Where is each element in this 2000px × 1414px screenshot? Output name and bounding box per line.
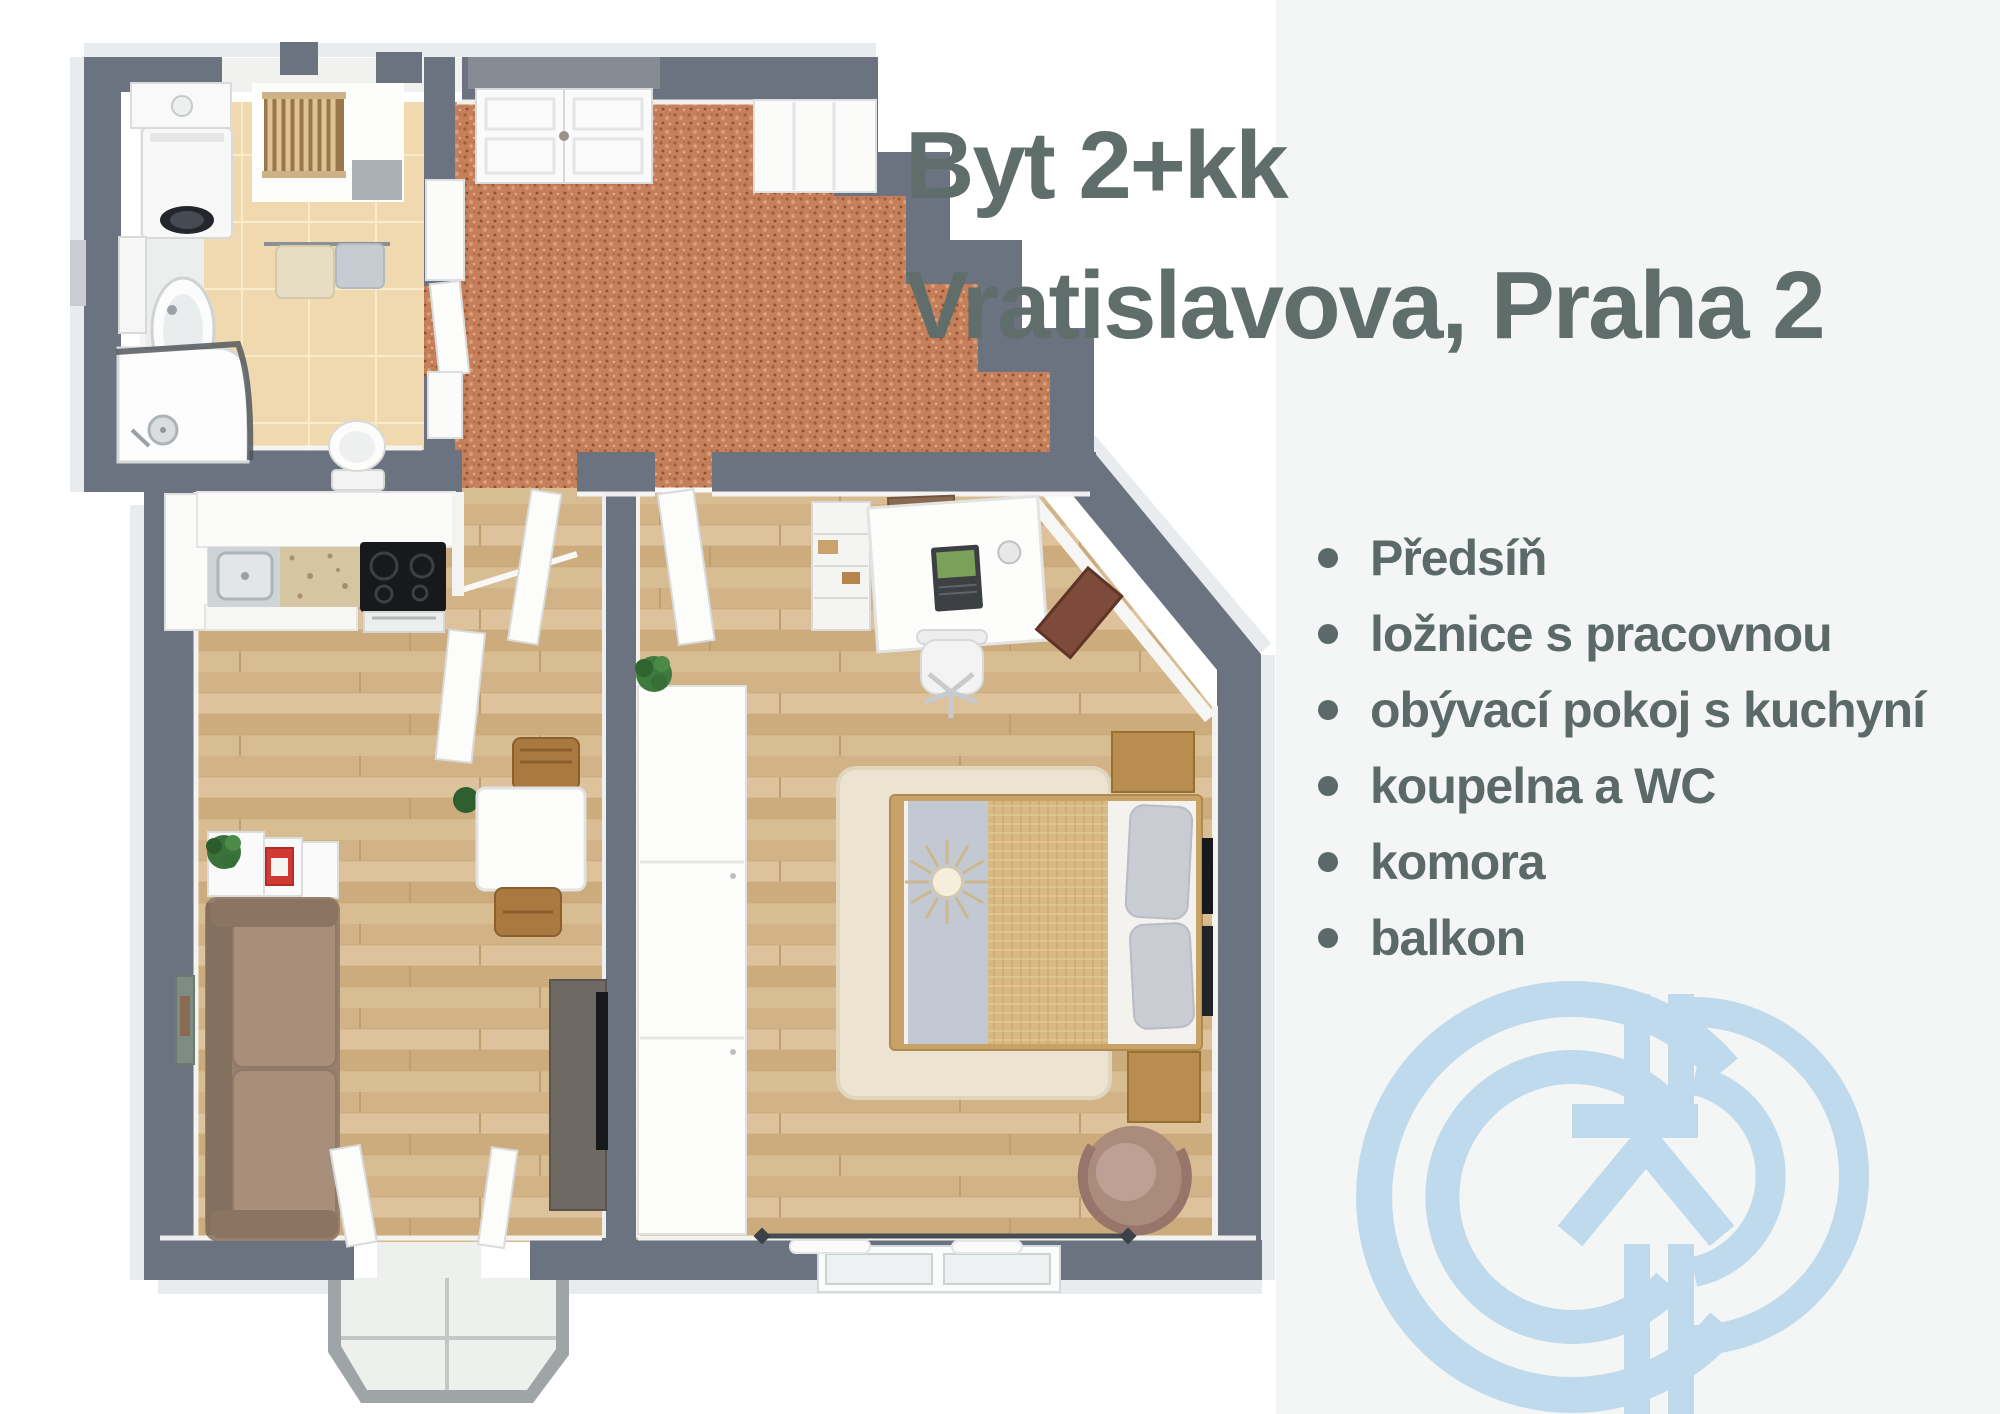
door-knob-icon xyxy=(559,131,569,141)
bed xyxy=(890,795,1202,1050)
floor-plant xyxy=(453,787,479,813)
feature-item: komora xyxy=(1318,824,1925,900)
gp-monogram-icon xyxy=(1350,980,2000,1414)
pillow xyxy=(1125,804,1193,919)
wardrobe xyxy=(638,686,746,1234)
logo-arrow-icon xyxy=(1570,1144,1722,1236)
cooktop xyxy=(360,542,446,612)
bed-blanket xyxy=(988,801,1108,1044)
bullet-icon xyxy=(1318,852,1338,872)
laptop xyxy=(931,545,983,612)
towel-gray xyxy=(336,244,384,288)
bullet-icon xyxy=(1318,776,1338,796)
bullet-icon xyxy=(1318,624,1338,644)
desk-lamp-icon xyxy=(998,541,1021,564)
feature-list: Předsíň ložnice s pracovnou obývací poko… xyxy=(1318,520,1925,976)
pillow xyxy=(1129,923,1194,1030)
bench xyxy=(352,160,402,200)
title-line-1: Byt 2+kk xyxy=(905,96,1824,236)
sofa xyxy=(205,897,340,1241)
oven-front xyxy=(364,612,444,632)
bullet-icon xyxy=(1318,548,1338,568)
magazine xyxy=(266,848,293,885)
dining-chair xyxy=(513,738,579,790)
shelf-unit xyxy=(812,502,870,630)
curtain xyxy=(790,1240,870,1253)
feature-item: ložnice s pracovnou xyxy=(1318,596,1925,672)
title-line-2: Vratislavova, Praha 2 xyxy=(905,236,1824,376)
hall-cabinet xyxy=(426,180,464,280)
toilet xyxy=(329,421,385,490)
towel-beige xyxy=(276,246,334,298)
logo-p-bowl-inner xyxy=(1694,1080,1771,1272)
kitchen xyxy=(165,492,464,632)
flyer-canvas: { "header": { "title_line1": "Byt 2+kk",… xyxy=(0,0,2000,1414)
page-title: Byt 2+kk Vratislavova, Praha 2 xyxy=(905,96,1824,376)
shower xyxy=(116,344,250,462)
feature-item: obývací pokoj s kuchyní xyxy=(1318,672,1925,748)
tv xyxy=(596,992,608,1150)
bullet-icon xyxy=(1318,700,1338,720)
desk xyxy=(868,496,1048,652)
bullet-icon xyxy=(1318,928,1338,948)
hall-closet xyxy=(754,100,876,192)
entrance-door xyxy=(468,57,660,183)
tv-stand xyxy=(550,980,608,1210)
dining-table xyxy=(477,788,585,890)
feature-item: Předsíň xyxy=(1318,520,1925,596)
feature-item: balkon xyxy=(1318,900,1925,976)
wall-art-frames xyxy=(1202,838,1213,1016)
feature-item: koupelna a WC xyxy=(1318,748,1925,824)
bath-cabinet xyxy=(119,237,146,333)
curtain xyxy=(952,1241,1022,1253)
kitchen-counter xyxy=(197,492,455,547)
